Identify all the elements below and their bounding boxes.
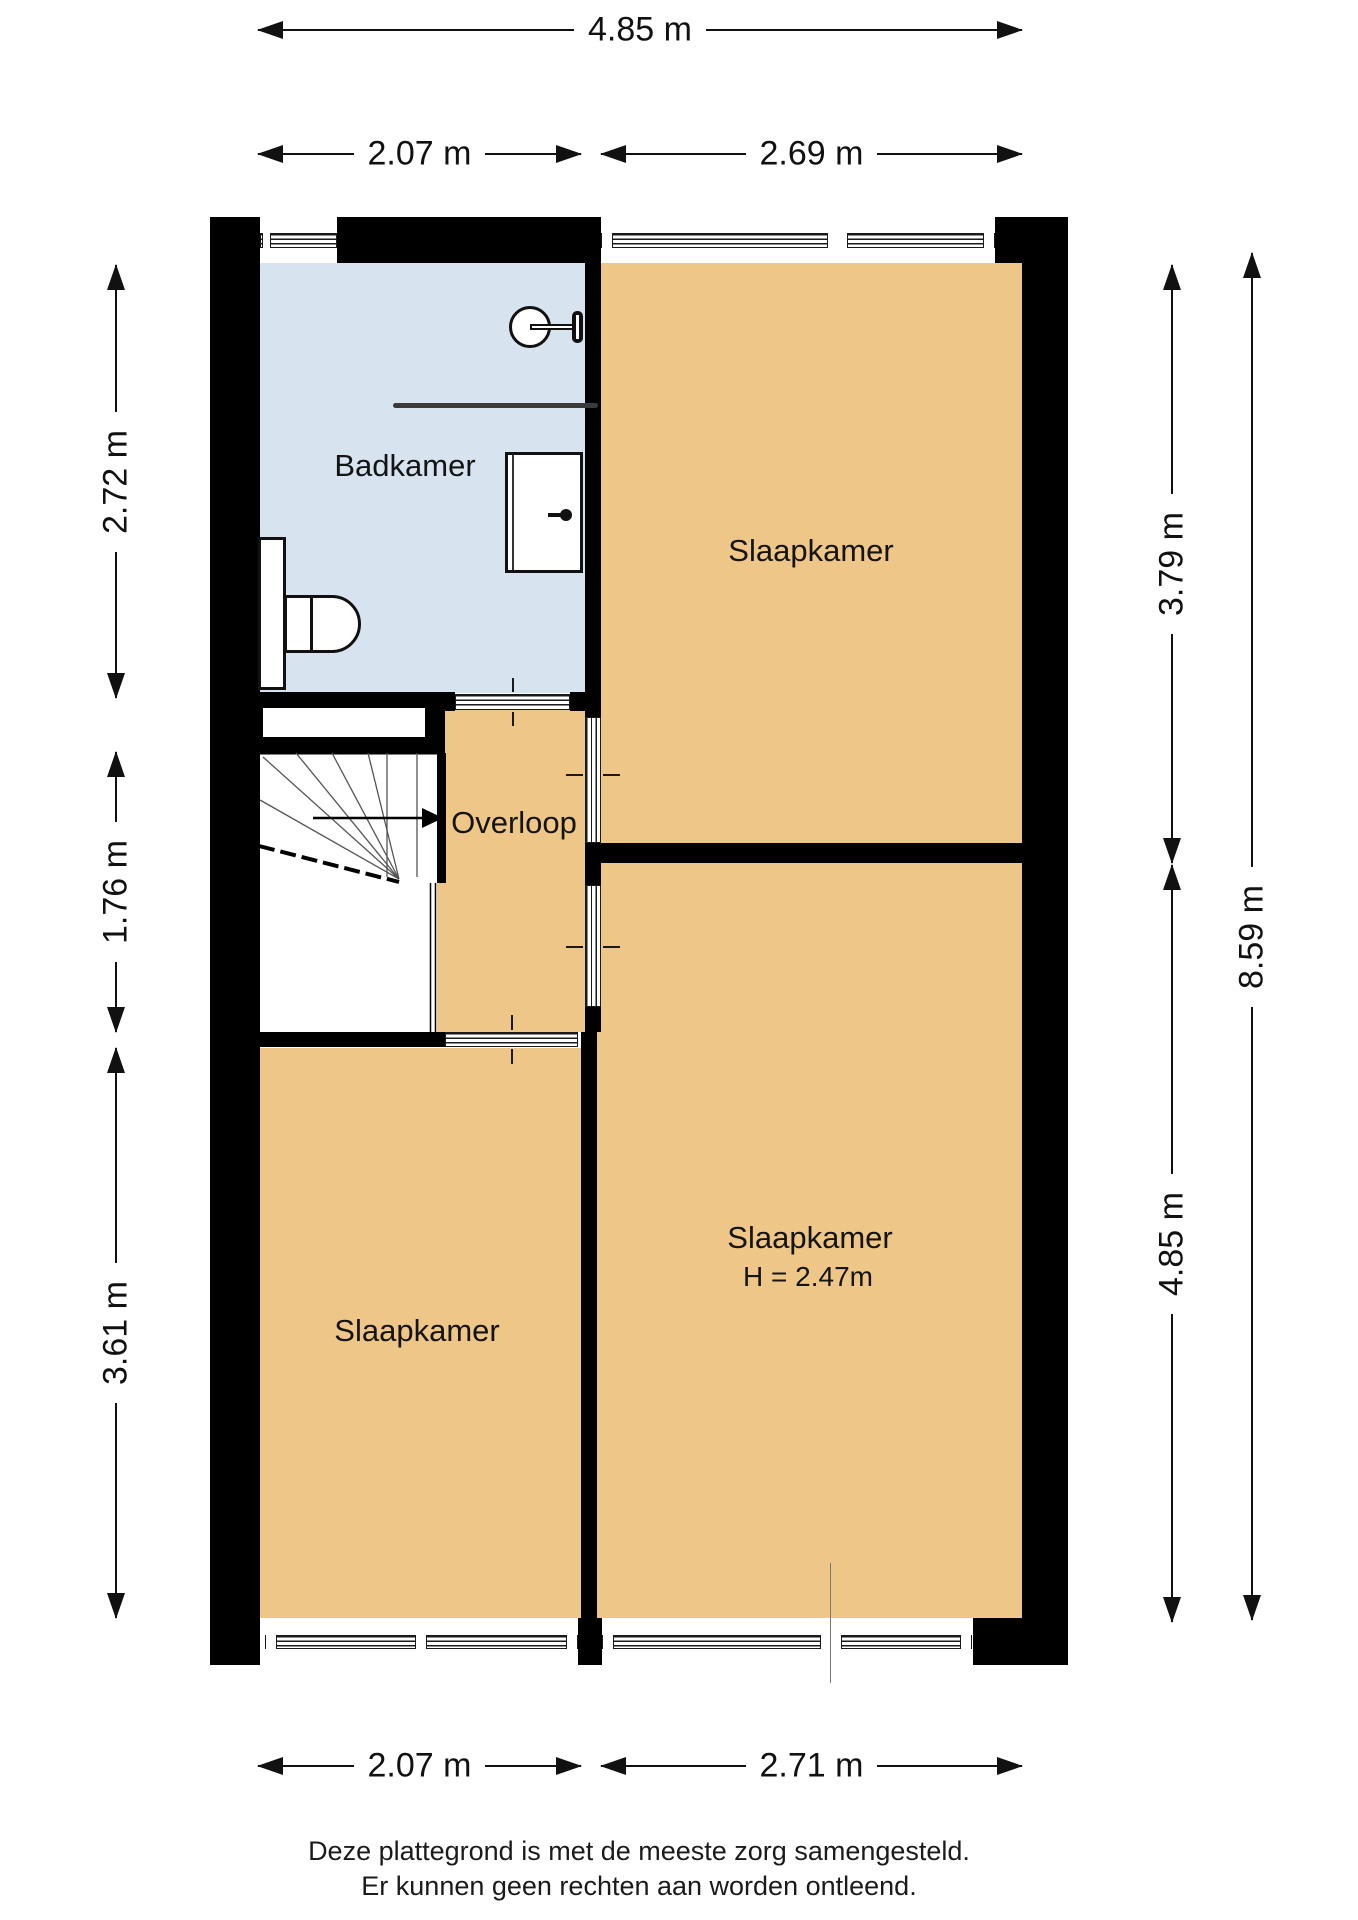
window-top-right <box>601 233 995 248</box>
door-slaapkamer-tr-tick-right <box>603 774 620 776</box>
toilet-cistern-icon <box>284 595 313 653</box>
door-slaapkamer-bottom-right <box>585 885 601 1007</box>
dim-top-left: 2.07 m <box>258 153 581 155</box>
wall-bottom-right-corner <box>973 1618 1068 1665</box>
duct-niche <box>258 537 286 690</box>
closet-niche <box>263 708 425 737</box>
dim-left-badkamer: 2.72 m <box>115 265 117 698</box>
arrowhead-right-icon <box>997 21 1023 39</box>
dim-top-left-label: 2.07 m <box>354 135 486 174</box>
disclaimer-line-2: Er kunnen geen rechten aan worden ontlee… <box>0 1869 1278 1904</box>
stairs-direction-arrow-icon <box>422 808 443 828</box>
dim-right-slaapkamer-top-label: 3.79 m <box>1153 494 1192 634</box>
window-bottom-right-cap-right <box>960 1635 972 1649</box>
label-slaapkamer-bottom-left: Slaapkamer <box>334 1313 499 1349</box>
dim-left-slaapkamer-label: 3.61 m <box>97 1263 136 1403</box>
door-slaapkamer-br-tick-left <box>566 946 583 948</box>
label-ceiling-height: H = 2.47m <box>743 1261 873 1293</box>
dim-top-right: 2.69 m <box>601 153 1022 155</box>
wall-right <box>1022 217 1068 1665</box>
tap-knob-icon <box>560 509 572 521</box>
staircase <box>250 748 450 1038</box>
window-bottom-right-mullion <box>820 1635 842 1649</box>
arrowhead-down-icon <box>107 1007 125 1033</box>
dim-right-slaapkamer-bottom-label: 4.85 m <box>1153 1174 1192 1314</box>
arrowhead-left-icon <box>257 145 283 163</box>
dim-left-badkamer-label: 2.72 m <box>97 412 136 552</box>
dim-right-slaapkamer-top: 3.79 m <box>1171 265 1173 863</box>
door-slaapkamer-top-right <box>585 717 601 843</box>
arrowhead-down-icon <box>1163 838 1181 864</box>
door-slaapkamer-tr-tick-left <box>566 774 583 776</box>
arrowhead-left-icon <box>257 1757 283 1775</box>
floorplan-canvas: Badkamer Slaapkamer Overloop Slaapkamer … <box>0 0 1358 1920</box>
dim-top-total: 4.85 m <box>258 29 1022 31</box>
shower-wall-bracket-inner <box>576 315 579 339</box>
arrowhead-right-icon <box>556 1757 582 1775</box>
towel-rail <box>393 403 598 408</box>
door-slaapkamer-br-tick-right <box>603 946 620 948</box>
arrowhead-left-icon <box>257 21 283 39</box>
wall-top-middle <box>337 217 601 263</box>
label-badkamer: Badkamer <box>334 448 475 484</box>
arrowhead-up-icon <box>107 751 125 777</box>
room-overloop <box>437 710 585 1032</box>
wall-bedrooms-divider-horizontal <box>585 843 1022 863</box>
label-slaapkamer-bottom-right: Slaapkamer <box>727 1220 892 1256</box>
arrowhead-down-icon <box>1243 1595 1261 1621</box>
window-top-right-mullion <box>827 233 848 248</box>
wall-overloop-right-upper <box>585 693 601 717</box>
arrowhead-right-icon <box>997 145 1023 163</box>
disclaimer: Deze plattegrond is met de meeste zorg s… <box>0 1834 1278 1904</box>
arrowhead-up-icon <box>1163 264 1181 290</box>
window-bottom-left-cap-right <box>566 1635 578 1649</box>
window-bottom-right-mullion-line <box>830 1563 831 1683</box>
window-top-right-cap-left <box>601 233 613 248</box>
dim-top-right-label: 2.69 m <box>746 135 878 174</box>
window-top-left <box>260 233 337 248</box>
window-top-left-cap <box>262 233 271 248</box>
label-overloop: Overloop <box>451 805 577 841</box>
arrowhead-right-icon <box>997 1757 1023 1775</box>
arrowhead-right-icon <box>556 145 582 163</box>
washbasin-front-edge <box>512 455 514 570</box>
door-badkamer-tick-top <box>512 678 514 692</box>
window-bottom-left-cap-left <box>265 1635 277 1649</box>
arrowhead-up-icon <box>1163 864 1181 890</box>
window-top-right-cap-right <box>983 233 995 248</box>
door-badkamer <box>455 694 570 710</box>
arrowhead-down-icon <box>107 673 125 699</box>
window-bottom-right-cap-left <box>602 1635 614 1649</box>
wall-bathdoor-left-stub <box>443 692 455 711</box>
dim-bottom-left: 2.07 m <box>258 1765 581 1767</box>
arrowhead-left-icon <box>600 1757 626 1775</box>
dim-bottom-right-label: 2.71 m <box>746 1747 878 1786</box>
dim-left-overloop: 1.76 m <box>115 752 117 1032</box>
door-badkamer-tick-bottom <box>512 712 514 726</box>
arrowhead-up-icon <box>107 1047 125 1073</box>
wall-bedrooms-divider-vertical <box>581 1032 597 1618</box>
door-slaapkamer-bottom-left <box>445 1032 578 1047</box>
label-slaapkamer-top-right: Slaapkamer <box>728 533 893 569</box>
window-bottom-left-mullion <box>415 1635 427 1649</box>
door-slaapkamer-bl-tick-top <box>511 1015 513 1030</box>
window-bottom-right <box>602 1635 972 1649</box>
arrowhead-down-icon <box>107 1593 125 1619</box>
wall-bottom-center-pier <box>578 1618 602 1665</box>
dim-right-total-label: 8.59 m <box>1233 867 1272 1007</box>
wall-overloop-right-lower <box>585 1007 601 1032</box>
arrowhead-left-icon <box>600 145 626 163</box>
dim-left-slaapkamer: 3.61 m <box>115 1048 117 1618</box>
dim-left-overloop-label: 1.76 m <box>97 822 136 962</box>
dim-right-slaapkamer-bottom: 4.85 m <box>1171 865 1173 1622</box>
wall-top-right-corner <box>995 217 1068 263</box>
disclaimer-line-1: Deze plattegrond is met de meeste zorg s… <box>0 1834 1278 1869</box>
dim-top-total-label: 4.85 m <box>574 11 706 50</box>
arrowhead-down-icon <box>1163 1597 1181 1623</box>
arrowhead-up-icon <box>107 264 125 290</box>
wall-badkamer-right <box>585 263 601 693</box>
shower-arm-inner <box>532 326 575 328</box>
dim-bottom-left-label: 2.07 m <box>354 1747 486 1786</box>
dim-right-total: 8.59 m <box>1251 253 1253 1620</box>
door-slaapkamer-bl-tick-bottom <box>511 1049 513 1064</box>
dim-bottom-right: 2.71 m <box>601 1765 1022 1767</box>
arrowhead-up-icon <box>1243 252 1261 278</box>
